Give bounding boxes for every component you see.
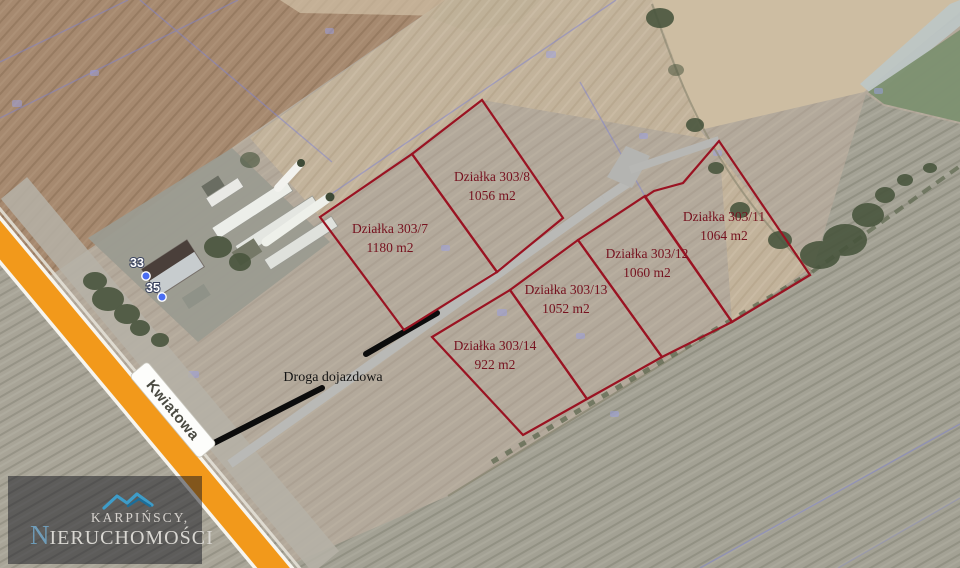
aerial-parcel-map: Działka 303/71180 m2 Działka 303/81056 m…: [0, 0, 960, 568]
agency-logo: KARPIŃSCY, NIERUCHOMOŚCI: [8, 476, 214, 564]
pipe-cap: [297, 159, 305, 167]
pipe-cap: [326, 193, 335, 202]
logo-line1: KARPIŃSCY,: [91, 510, 189, 525]
address-marker-33: 33: [130, 256, 144, 270]
access-road-label: Droga dojazdowa: [283, 370, 383, 385]
address-dot-33: [142, 272, 150, 280]
address-marker-35: 35: [146, 281, 160, 295]
address-dot-35: [158, 293, 166, 301]
logo-rest: IERUCHOMOŚCI: [50, 525, 214, 549]
logo-initial: N: [30, 520, 50, 550]
